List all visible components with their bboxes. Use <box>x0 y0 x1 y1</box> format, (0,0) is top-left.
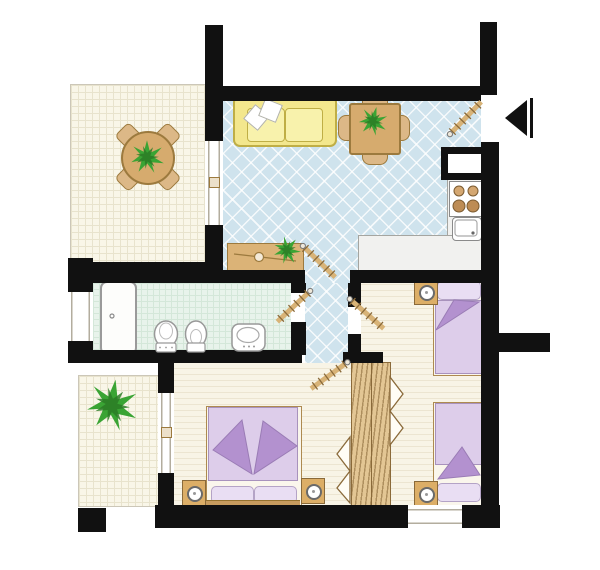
wall <box>205 270 305 283</box>
bathroom-window <box>68 292 93 341</box>
wall <box>68 350 302 363</box>
stove <box>449 181 484 217</box>
wall <box>348 283 361 307</box>
wall <box>499 333 550 352</box>
door-handle-icon <box>209 177 220 188</box>
nightstand <box>301 478 325 504</box>
sideboard <box>227 243 304 272</box>
window-handle-icon <box>161 427 172 438</box>
wall <box>68 341 93 363</box>
wall <box>68 258 93 292</box>
dining-table <box>349 103 401 155</box>
lamp-icon <box>306 484 322 500</box>
lamp-icon <box>419 285 435 301</box>
entrance-arrow-bar <box>530 98 533 138</box>
nightstand <box>182 480 206 506</box>
wall <box>158 352 174 393</box>
wall <box>155 505 408 528</box>
bedroom-window <box>158 393 174 473</box>
floor-plan <box>0 0 600 570</box>
wall <box>205 25 223 142</box>
wall <box>481 142 499 523</box>
round-table <box>121 131 175 185</box>
wall <box>291 283 306 293</box>
single-bed-blanket <box>435 300 483 374</box>
wall-niche-opening <box>448 154 481 173</box>
lamp-icon <box>187 486 203 502</box>
single-bed-blanket <box>435 403 483 465</box>
wall-pillar <box>78 508 106 532</box>
lamp-icon <box>419 487 435 503</box>
sliding-door-terrace <box>205 141 223 225</box>
bedroom-twin-window <box>408 505 462 528</box>
wall <box>158 473 174 508</box>
bed-pillow <box>437 483 481 502</box>
shower-tray <box>100 281 137 355</box>
kitchen-sink <box>452 217 482 241</box>
terrace-small-floor <box>78 375 160 507</box>
wall <box>205 86 481 101</box>
wall <box>350 270 481 283</box>
wardrobe <box>351 362 391 508</box>
wall <box>343 352 383 363</box>
double-bed-blanket <box>208 407 298 481</box>
hallway-floor <box>305 283 348 363</box>
wall <box>462 505 500 528</box>
nightstand <box>414 481 438 507</box>
bed-pillow <box>437 281 481 300</box>
sofa-cushion <box>285 108 323 142</box>
wardrobe-rail <box>371 363 372 507</box>
wall <box>480 22 497 95</box>
entrance-arrow-icon <box>505 100 527 136</box>
